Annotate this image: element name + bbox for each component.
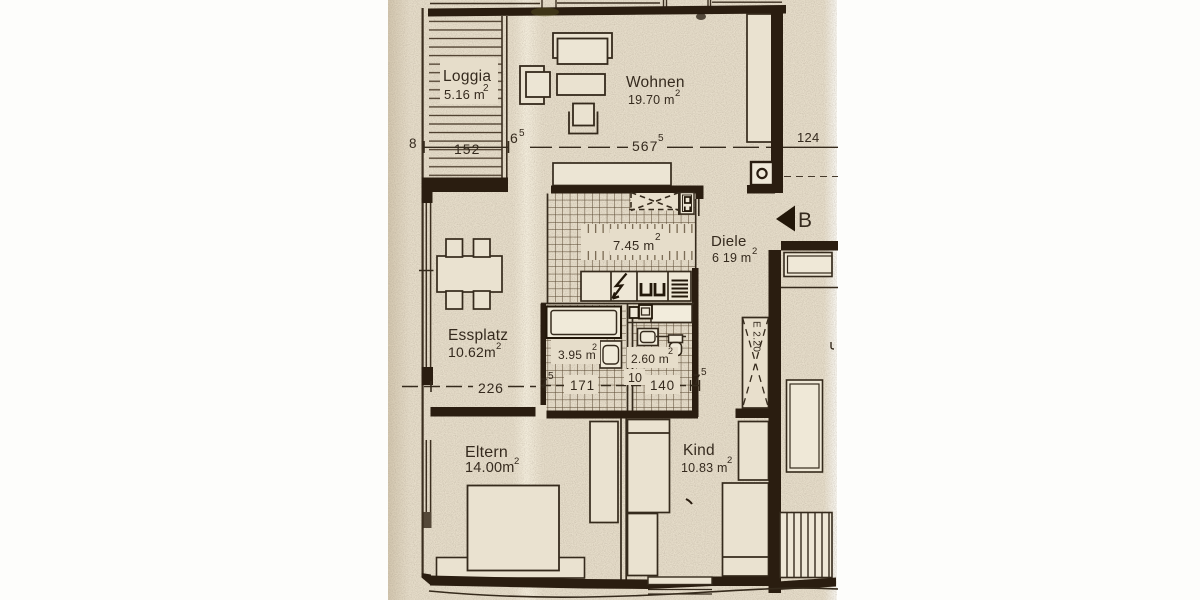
svg-text:567: 567 — [632, 138, 658, 154]
svg-text:6 19 m: 6 19 m — [712, 251, 751, 265]
svg-text:140: 140 — [650, 378, 675, 393]
svg-text:E 2.20: E 2.20 — [751, 321, 762, 352]
svg-text:226: 226 — [478, 380, 504, 396]
svg-text:5: 5 — [548, 371, 554, 382]
svg-text:Eltern: Eltern — [465, 444, 508, 461]
svg-text:8: 8 — [409, 136, 417, 151]
svg-text:2.60 m: 2.60 m — [631, 352, 669, 366]
svg-text:7: 7 — [540, 376, 548, 391]
svg-text:2: 2 — [675, 88, 680, 99]
svg-text:5: 5 — [658, 133, 664, 144]
svg-text:6: 6 — [510, 130, 518, 146]
svg-text:10: 10 — [628, 371, 642, 385]
svg-text:2: 2 — [727, 455, 732, 466]
svg-text:2: 2 — [752, 246, 757, 257]
svg-text:124: 124 — [797, 130, 820, 145]
svg-text:5: 5 — [519, 128, 525, 139]
svg-text:152: 152 — [454, 141, 480, 157]
svg-text:7.45 m: 7.45 m — [613, 238, 655, 253]
svg-text:19.70 m: 19.70 m — [628, 93, 675, 107]
svg-text:2: 2 — [483, 83, 489, 94]
svg-text:171: 171 — [570, 378, 595, 393]
svg-text:2: 2 — [592, 342, 597, 352]
svg-text:5.16 m: 5.16 m — [444, 87, 485, 102]
svg-text:3.95 m: 3.95 m — [558, 348, 596, 362]
svg-text:7: 7 — [693, 372, 701, 387]
svg-text:2: 2 — [514, 456, 519, 467]
svg-text:10.62m: 10.62m — [448, 344, 496, 360]
svg-text:2: 2 — [655, 232, 661, 243]
svg-text:2: 2 — [496, 341, 501, 352]
svg-text:Kind: Kind — [683, 442, 715, 459]
svg-text:5: 5 — [701, 367, 707, 378]
svg-text:14.00m: 14.00m — [465, 460, 515, 476]
svg-text:B: B — [798, 209, 812, 232]
svg-text:2: 2 — [668, 346, 673, 356]
svg-text:Diele: Diele — [711, 233, 747, 250]
svg-text:10.83 m: 10.83 m — [681, 461, 728, 475]
